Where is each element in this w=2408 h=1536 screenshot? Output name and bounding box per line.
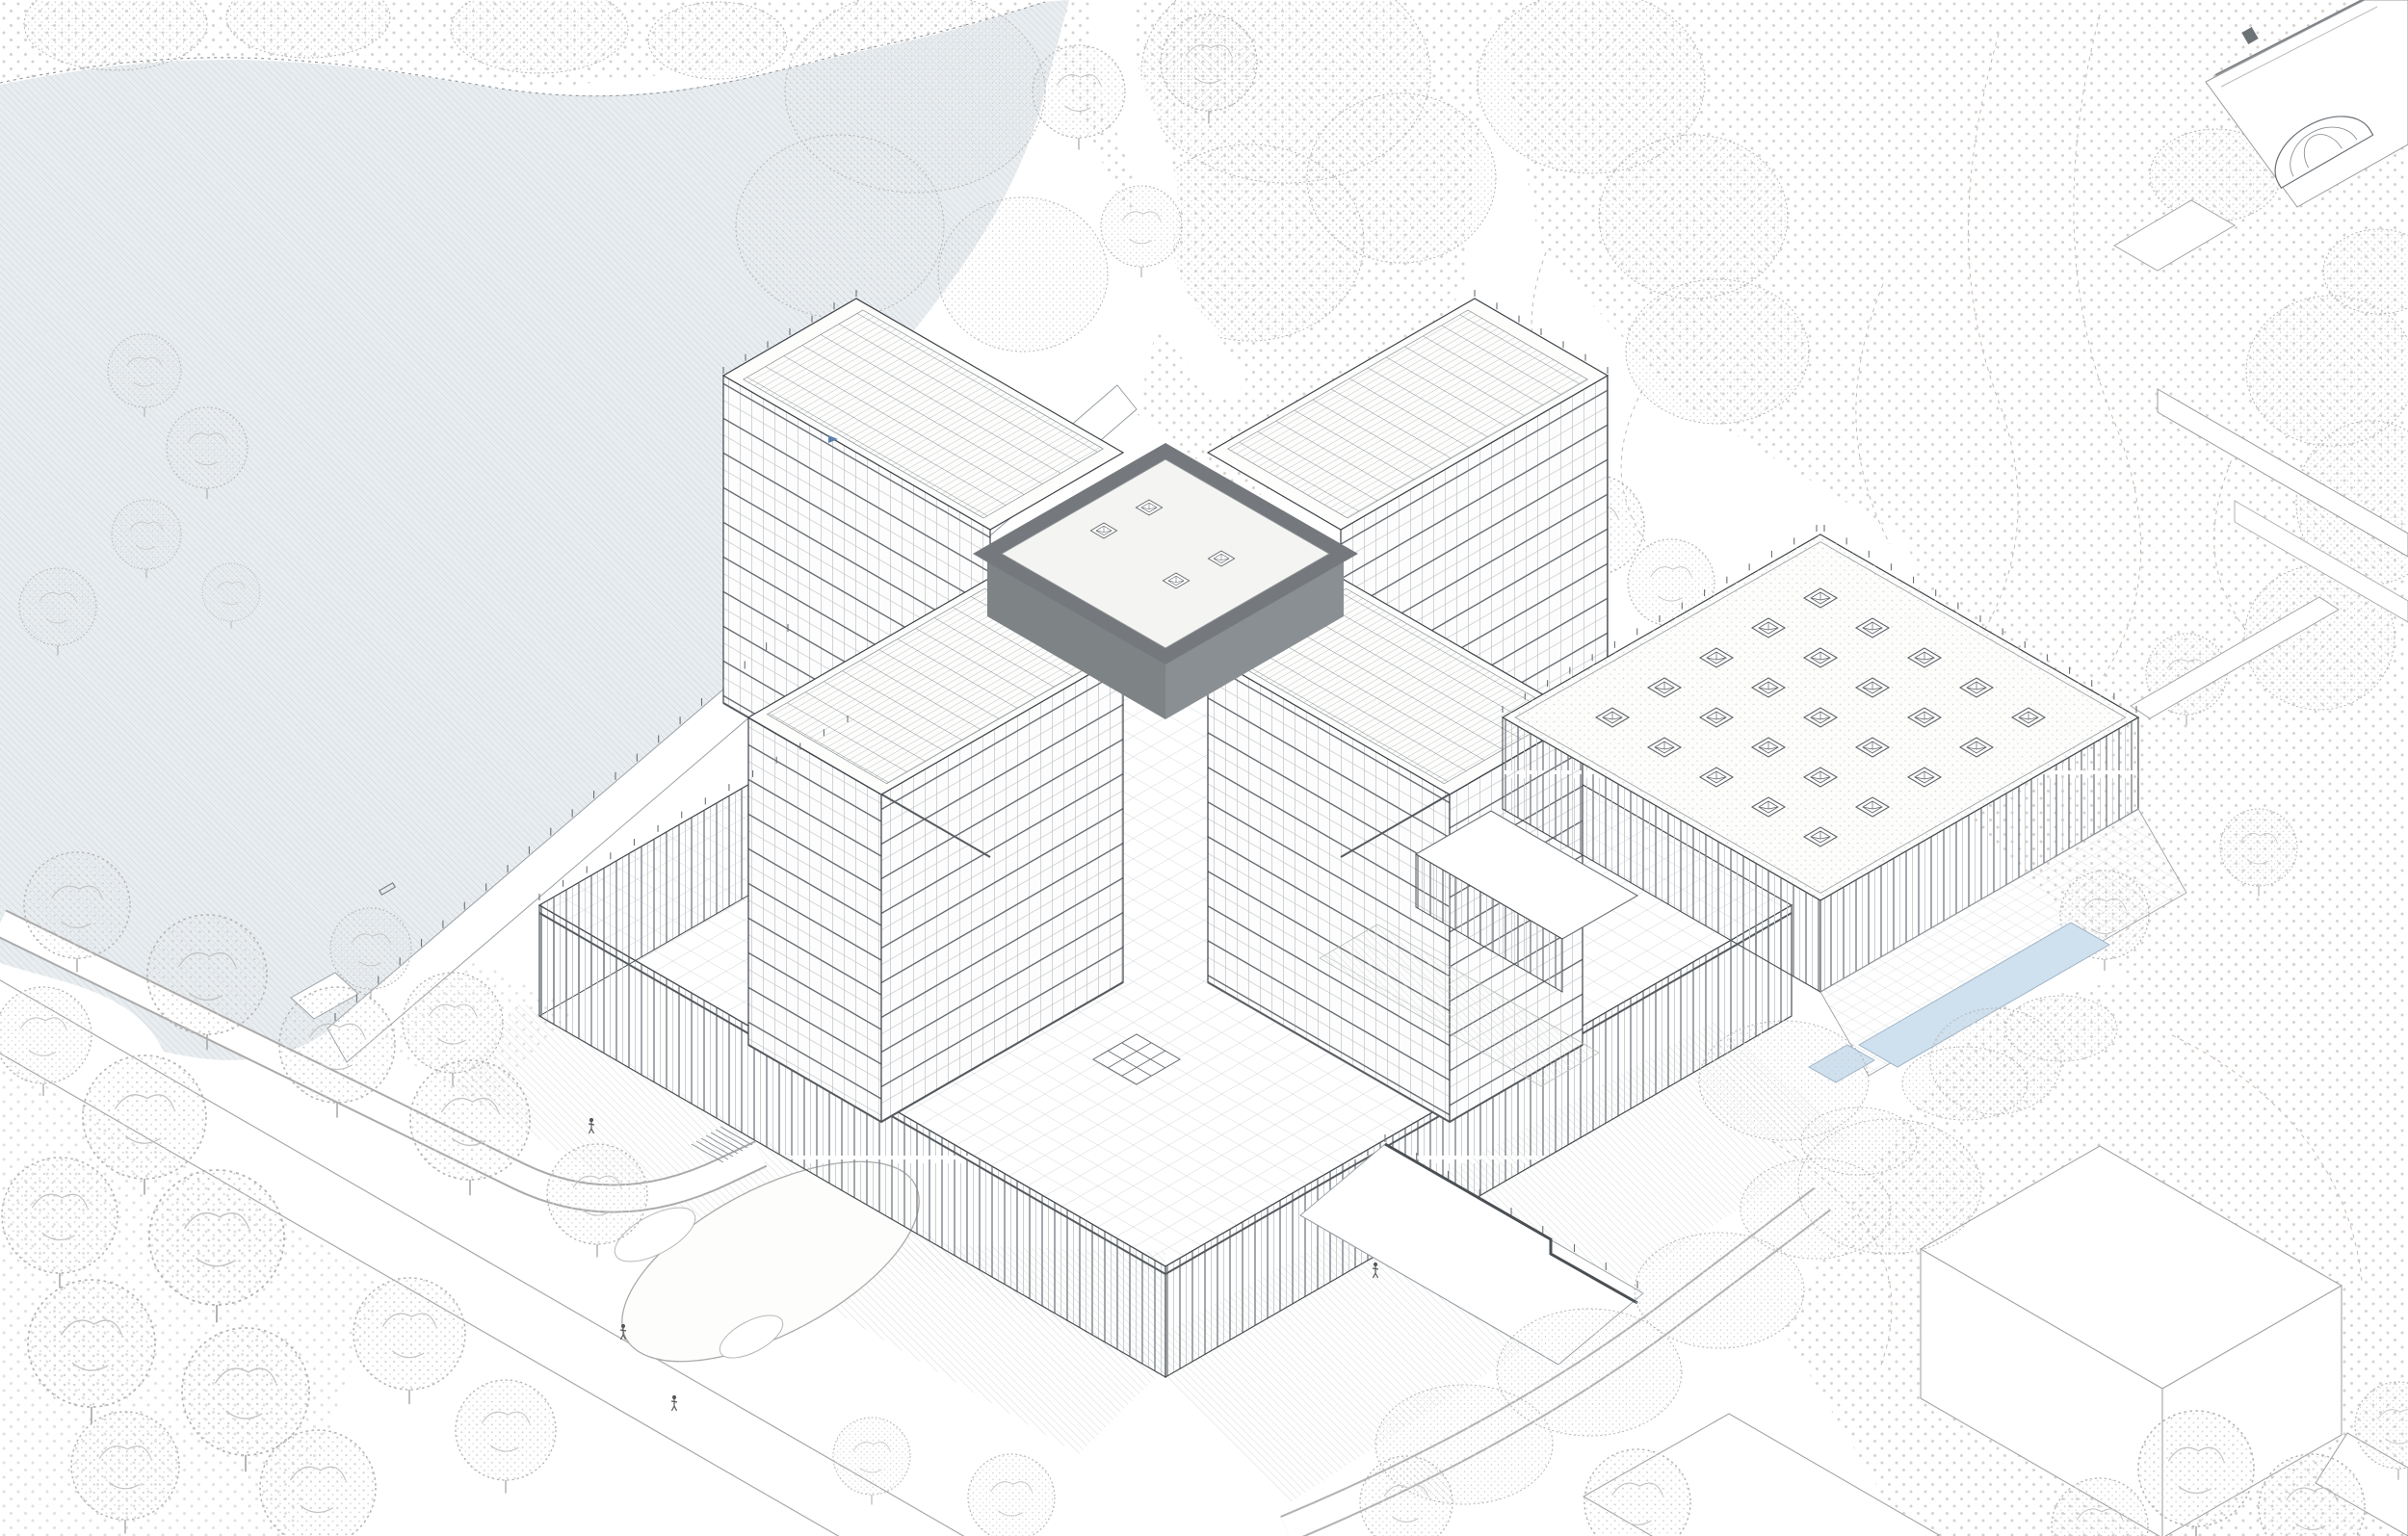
hedge-canopy bbox=[1801, 1107, 1917, 1175]
forest-canopy bbox=[648, 2, 787, 79]
site-axonometric-drawing bbox=[0, 0, 2408, 1536]
hedge-canopy bbox=[1902, 1047, 2028, 1120]
hedge-canopy bbox=[2005, 996, 2117, 1061]
forest-canopy bbox=[736, 135, 944, 318]
forest-canopy bbox=[1599, 135, 1788, 299]
forest-canopy bbox=[1626, 279, 1809, 424]
forest-canopy bbox=[1307, 93, 1496, 263]
forest-canopy bbox=[938, 197, 1108, 351]
